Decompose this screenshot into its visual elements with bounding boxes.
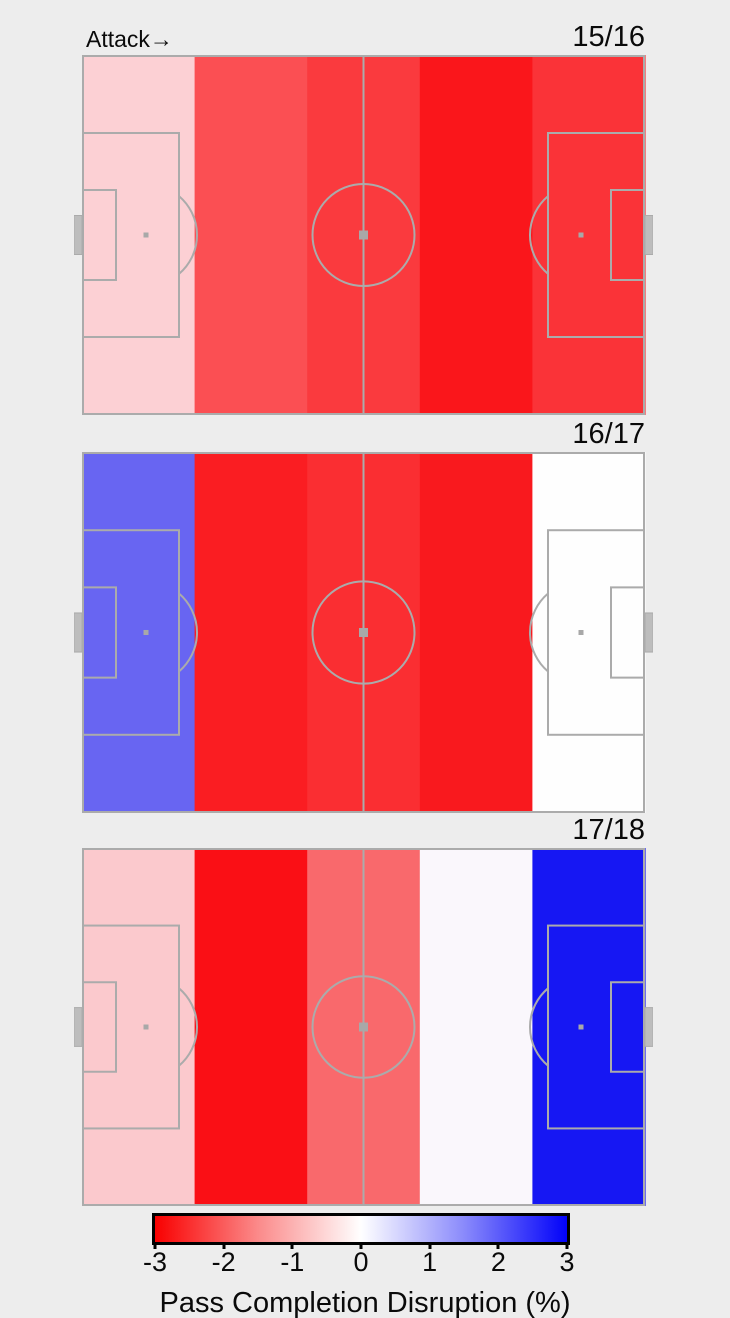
pitch-heatmap-15-16 xyxy=(74,55,653,415)
penalty-spot-left xyxy=(144,1025,149,1030)
centre-mark xyxy=(359,1023,368,1032)
centre-mark xyxy=(359,231,368,240)
zone-2-band xyxy=(195,452,308,813)
zone-5-band xyxy=(532,452,645,813)
goal-right xyxy=(645,1008,653,1047)
colorbar-tick-label: -3 xyxy=(143,1248,167,1277)
goal-left xyxy=(74,216,82,255)
attack-direction-label: Attack→ xyxy=(86,27,173,51)
penalty-spot-left xyxy=(144,233,149,238)
pitch-panel-16-17: 16/17 xyxy=(74,452,653,813)
zone-4-band xyxy=(420,452,533,813)
penalty-spot-right xyxy=(579,630,584,635)
season-label: 15/16 xyxy=(572,22,645,52)
penalty-spot-left xyxy=(144,630,149,635)
penalty-spot-right xyxy=(579,233,584,238)
goal-left xyxy=(74,613,82,652)
colorbar-tick-label: 1 xyxy=(422,1248,437,1277)
colorbar-tick-label: 2 xyxy=(491,1248,506,1277)
pitch-heatmap-17-18 xyxy=(74,848,653,1206)
zone-2-band xyxy=(195,55,308,415)
zone-2-band xyxy=(195,848,308,1206)
season-label: 17/18 xyxy=(572,815,645,845)
colorbar-axis-label: Pass Completion Disruption (%) xyxy=(0,1286,730,1318)
penalty-spot-right xyxy=(579,1025,584,1030)
zone-5-band xyxy=(532,848,645,1206)
zone-4-band xyxy=(420,848,533,1206)
zone-5-band xyxy=(532,55,645,415)
zone-4-band xyxy=(420,55,533,415)
pitch-heatmap-16-17 xyxy=(74,452,653,813)
colorbar-tick-label: -2 xyxy=(212,1248,236,1277)
colorbar-gradient xyxy=(152,1213,570,1245)
season-label: 16/17 xyxy=(572,419,645,449)
colorbar-tick-label: 0 xyxy=(353,1248,368,1277)
colorbar-tick-label: 3 xyxy=(559,1248,574,1277)
goal-right xyxy=(645,613,653,652)
centre-mark xyxy=(359,628,368,637)
colorbar-tick-labels: -3-2-10123 xyxy=(155,1248,567,1278)
pitch-panel-17-18: 17/18 xyxy=(74,848,653,1206)
figure: Attack→ 15/16 16/17 17/18 -3-2-10123 Pas… xyxy=(0,0,730,1318)
colorbar-tick-label: -1 xyxy=(280,1248,304,1277)
goal-left xyxy=(74,1008,82,1047)
goal-right xyxy=(645,216,653,255)
pitch-panel-15-16: 15/16 xyxy=(74,55,653,415)
